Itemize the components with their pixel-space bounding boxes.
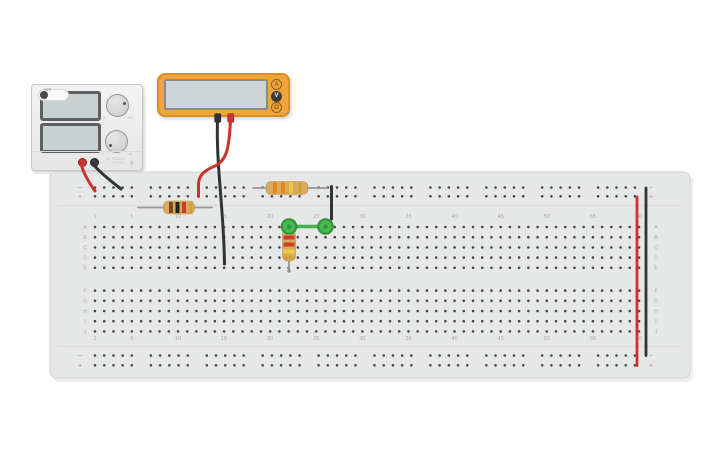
breadboard-hole[interactable] — [140, 256, 143, 259]
breadboard-hole[interactable] — [140, 226, 143, 229]
breadboard-hole[interactable] — [232, 320, 235, 323]
breadboard-hole[interactable] — [195, 236, 198, 239]
breadboard-hole[interactable] — [435, 256, 438, 259]
breadboard-hole[interactable] — [592, 226, 595, 229]
breadboard-hole[interactable] — [509, 256, 512, 259]
breadboard-hole[interactable] — [619, 330, 622, 333]
breadboard-hole[interactable] — [150, 186, 153, 189]
breadboard-hole[interactable] — [435, 226, 438, 229]
breadboard-hole[interactable] — [177, 186, 180, 189]
breadboard-hole[interactable] — [472, 289, 475, 292]
breadboard-hole[interactable] — [513, 354, 516, 357]
breadboard-hole[interactable] — [269, 330, 272, 333]
breadboard-hole[interactable] — [373, 195, 376, 198]
breadboard-hole[interactable] — [317, 364, 320, 367]
breadboard-hole[interactable] — [370, 289, 373, 292]
breadboard-hole[interactable] — [628, 330, 631, 333]
breadboard-hole[interactable] — [370, 246, 373, 249]
breadboard-hole[interactable] — [336, 186, 339, 189]
breadboard-hole[interactable] — [444, 320, 447, 323]
breadboard-hole[interactable] — [361, 320, 364, 323]
breadboard-hole[interactable] — [121, 364, 124, 367]
breadboard-hole[interactable] — [555, 310, 558, 313]
breadboard-hole[interactable] — [444, 256, 447, 259]
breadboard-hole[interactable] — [380, 289, 383, 292]
breadboard-hole[interactable] — [610, 236, 613, 239]
breadboard-hole[interactable] — [401, 364, 404, 367]
breadboard-hole[interactable] — [463, 310, 466, 313]
breadboard-hole[interactable] — [463, 320, 466, 323]
breadboard-hole[interactable] — [380, 300, 383, 303]
breadboard-hole[interactable] — [619, 256, 622, 259]
breadboard-hole[interactable] — [416, 300, 419, 303]
breadboard-hole[interactable] — [392, 364, 395, 367]
breadboard-hole[interactable] — [490, 267, 493, 270]
breadboard-hole[interactable] — [490, 310, 493, 313]
breadboard-hole[interactable] — [361, 236, 364, 239]
breadboard-hole[interactable] — [131, 246, 134, 249]
breadboard-hole[interactable] — [94, 267, 97, 270]
breadboard-hole[interactable] — [582, 320, 585, 323]
breadboard-hole[interactable] — [149, 330, 152, 333]
breadboard-hole[interactable] — [426, 310, 429, 313]
breadboard-hole[interactable] — [214, 226, 217, 229]
breadboard-hole[interactable] — [149, 236, 152, 239]
breadboard-hole[interactable] — [382, 364, 385, 367]
breadboard-hole[interactable] — [131, 289, 134, 292]
breadboard-hole[interactable] — [121, 289, 124, 292]
breadboard-hole[interactable] — [541, 364, 544, 367]
breadboard-hole[interactable] — [448, 195, 451, 198]
breadboard-hole[interactable] — [345, 195, 348, 198]
breadboard-hole[interactable] — [410, 364, 413, 367]
breadboard-hole[interactable] — [606, 195, 609, 198]
breadboard-hole[interactable] — [457, 186, 460, 189]
breadboard-hole[interactable] — [373, 186, 376, 189]
breadboard-hole[interactable] — [380, 236, 383, 239]
breadboard-hole[interactable] — [509, 330, 512, 333]
breadboard-hole[interactable] — [112, 300, 115, 303]
breadboard-hole[interactable] — [260, 310, 263, 313]
breadboard-hole[interactable] — [401, 186, 404, 189]
breadboard-hole[interactable] — [287, 289, 290, 292]
breadboard-hole[interactable] — [559, 195, 562, 198]
breadboard-hole[interactable] — [352, 236, 355, 239]
breadboard-hole[interactable] — [503, 354, 506, 357]
breadboard-hole[interactable] — [592, 330, 595, 333]
breadboard-hole[interactable] — [233, 186, 236, 189]
breadboard-hole[interactable] — [545, 320, 548, 323]
breadboard-hole[interactable] — [177, 195, 180, 198]
breadboard-hole[interactable] — [315, 310, 318, 313]
breadboard-hole[interactable] — [195, 320, 198, 323]
breadboard-hole[interactable] — [250, 256, 253, 259]
breadboard-hole[interactable] — [315, 267, 318, 270]
breadboard-hole[interactable] — [233, 364, 236, 367]
breadboard-hole[interactable] — [131, 236, 134, 239]
breadboard-hole[interactable] — [103, 186, 106, 189]
breadboard-hole[interactable] — [214, 289, 217, 292]
breadboard-hole[interactable] — [343, 289, 346, 292]
breadboard-hole[interactable] — [536, 226, 539, 229]
breadboard-hole[interactable] — [168, 354, 171, 357]
breadboard-hole[interactable] — [336, 195, 339, 198]
breadboard-hole[interactable] — [324, 289, 327, 292]
breadboard-hole[interactable] — [481, 267, 484, 270]
breadboard-hole[interactable] — [407, 330, 410, 333]
breadboard-hole[interactable] — [545, 289, 548, 292]
breadboard-hole[interactable] — [149, 300, 152, 303]
breadboard-hole[interactable] — [232, 289, 235, 292]
breadboard-hole[interactable] — [121, 330, 124, 333]
breadboard-hole[interactable] — [158, 267, 161, 270]
breadboard-hole[interactable] — [150, 195, 153, 198]
breadboard-hole[interactable] — [545, 310, 548, 313]
breadboard-hole[interactable] — [280, 195, 283, 198]
breadboard-hole[interactable] — [112, 267, 115, 270]
breadboard-hole[interactable] — [260, 236, 263, 239]
breadboard-hole[interactable] — [389, 267, 392, 270]
breadboard-hole[interactable] — [527, 320, 530, 323]
breadboard-hole[interactable] — [206, 195, 209, 198]
breadboard-hole[interactable] — [382, 195, 385, 198]
breadboard-hole[interactable] — [260, 226, 263, 229]
breadboard-hole[interactable] — [361, 300, 364, 303]
breadboard-hole[interactable] — [509, 300, 512, 303]
breadboard-hole[interactable] — [352, 289, 355, 292]
breadboard-hole[interactable] — [306, 300, 309, 303]
breadboard-hole[interactable] — [158, 256, 161, 259]
breadboard-hole[interactable] — [564, 320, 567, 323]
breadboard-hole[interactable] — [438, 364, 441, 367]
breadboard-hole[interactable] — [250, 236, 253, 239]
breadboard-hole[interactable] — [536, 236, 539, 239]
breadboard-hole[interactable] — [131, 354, 134, 357]
breadboard-hole[interactable] — [223, 267, 226, 270]
breadboard-hole[interactable] — [112, 195, 115, 198]
breadboard-hole[interactable] — [592, 300, 595, 303]
breadboard-hole[interactable] — [457, 195, 460, 198]
breadboard-hole[interactable] — [297, 320, 300, 323]
breadboard-hole[interactable] — [380, 330, 383, 333]
breadboard-hole[interactable] — [463, 256, 466, 259]
breadboard-hole[interactable] — [214, 310, 217, 313]
breadboard-hole[interactable] — [204, 256, 207, 259]
breadboard-hole[interactable] — [271, 195, 274, 198]
breadboard-hole[interactable] — [555, 267, 558, 270]
breadboard-hole[interactable] — [159, 364, 162, 367]
breadboard-hole[interactable] — [324, 300, 327, 303]
breadboard-hole[interactable] — [513, 186, 516, 189]
breadboard-hole[interactable] — [223, 300, 226, 303]
breadboard-hole[interactable] — [401, 195, 404, 198]
breadboard-hole[interactable] — [426, 236, 429, 239]
breadboard-hole[interactable] — [297, 236, 300, 239]
breadboard-hole[interactable] — [592, 289, 595, 292]
breadboard-hole[interactable] — [352, 226, 355, 229]
breadboard-hole[interactable] — [578, 186, 581, 189]
breadboard-hole[interactable] — [453, 300, 456, 303]
breadboard-hole[interactable] — [168, 186, 171, 189]
breadboard-hole[interactable] — [573, 300, 576, 303]
breadboard-hole[interactable] — [250, 320, 253, 323]
breadboard-hole[interactable] — [509, 246, 512, 249]
breadboard-hole[interactable] — [94, 354, 97, 357]
breadboard-hole[interactable] — [545, 300, 548, 303]
breadboard-hole[interactable] — [204, 236, 207, 239]
breadboard-hole[interactable] — [481, 236, 484, 239]
breadboard-hole[interactable] — [444, 310, 447, 313]
breadboard-hole[interactable] — [550, 186, 553, 189]
breadboard-hole[interactable] — [177, 256, 180, 259]
breadboard-hole[interactable] — [324, 320, 327, 323]
breadboard-hole[interactable] — [131, 300, 134, 303]
breadboard-hole[interactable] — [250, 330, 253, 333]
breadboard-hole[interactable] — [426, 289, 429, 292]
breadboard-hole[interactable] — [269, 289, 272, 292]
breadboard-hole[interactable] — [131, 320, 134, 323]
breadboard-hole[interactable] — [250, 289, 253, 292]
breadboard-hole[interactable] — [490, 236, 493, 239]
breadboard-hole[interactable] — [407, 289, 410, 292]
breadboard-hole[interactable] — [382, 186, 385, 189]
breadboard-hole[interactable] — [536, 300, 539, 303]
breadboard-hole[interactable] — [494, 195, 497, 198]
breadboard-hole[interactable] — [158, 300, 161, 303]
breadboard-hole[interactable] — [509, 236, 512, 239]
breadboard-hole[interactable] — [103, 354, 106, 357]
breadboard-hole[interactable] — [555, 300, 558, 303]
breadboard-hole[interactable] — [573, 226, 576, 229]
breadboard-hole[interactable] — [536, 267, 539, 270]
breadboard-hole[interactable] — [610, 246, 613, 249]
breadboard-hole[interactable] — [615, 195, 618, 198]
breadboard-hole[interactable] — [624, 364, 627, 367]
breadboard-hole[interactable] — [167, 246, 170, 249]
breadboard-hole[interactable] — [232, 236, 235, 239]
breadboard-hole[interactable] — [186, 186, 189, 189]
breadboard-hole[interactable] — [186, 310, 189, 313]
breadboard-hole[interactable] — [555, 320, 558, 323]
breadboard-hole[interactable] — [289, 354, 292, 357]
breadboard-hole[interactable] — [541, 354, 544, 357]
breadboard-hole[interactable] — [628, 267, 631, 270]
breadboard-hole[interactable] — [490, 246, 493, 249]
breadboard-hole[interactable] — [121, 226, 124, 229]
breadboard-hole[interactable] — [261, 195, 264, 198]
breadboard-hole[interactable] — [204, 246, 207, 249]
breadboard-hole[interactable] — [582, 300, 585, 303]
breadboard-hole[interactable] — [582, 236, 585, 239]
breadboard-hole[interactable] — [559, 364, 562, 367]
breadboard-hole[interactable] — [167, 267, 170, 270]
breadboard-hole[interactable] — [345, 364, 348, 367]
breadboard-hole[interactable] — [407, 310, 410, 313]
breadboard-hole[interactable] — [444, 300, 447, 303]
breadboard-hole[interactable] — [195, 330, 198, 333]
breadboard-hole[interactable] — [232, 226, 235, 229]
breadboard-hole[interactable] — [112, 186, 115, 189]
breadboard-hole[interactable] — [121, 256, 124, 259]
breadboard-hole[interactable] — [94, 236, 97, 239]
breadboard-hole[interactable] — [149, 256, 152, 259]
breadboard-hole[interactable] — [472, 267, 475, 270]
breadboard-hole[interactable] — [352, 330, 355, 333]
breadboard-hole[interactable] — [536, 289, 539, 292]
breadboard-hole[interactable] — [610, 310, 613, 313]
breadboard-hole[interactable] — [628, 256, 631, 259]
breadboard-hole[interactable] — [509, 226, 512, 229]
breadboard-hole[interactable] — [158, 289, 161, 292]
breadboard-hole[interactable] — [103, 267, 106, 270]
breadboard-hole[interactable] — [158, 236, 161, 239]
breadboard-hole[interactable] — [416, 236, 419, 239]
breadboard-hole[interactable] — [298, 195, 301, 198]
breadboard-hole[interactable] — [398, 330, 401, 333]
breadboard-hole[interactable] — [131, 256, 134, 259]
breadboard-hole[interactable] — [112, 354, 115, 357]
breadboard-hole[interactable] — [592, 320, 595, 323]
breadboard-hole[interactable] — [352, 300, 355, 303]
breadboard-hole[interactable] — [398, 310, 401, 313]
breadboard-hole[interactable] — [610, 289, 613, 292]
breadboard-hole[interactable] — [453, 310, 456, 313]
breadboard-hole[interactable] — [494, 364, 497, 367]
breadboard-hole[interactable] — [569, 186, 572, 189]
breadboard-hole[interactable] — [103, 195, 106, 198]
breadboard-hole[interactable] — [150, 354, 153, 357]
breadboard-hole[interactable] — [333, 310, 336, 313]
breadboard-hole[interactable] — [444, 236, 447, 239]
breadboard-hole[interactable] — [389, 300, 392, 303]
breadboard-hole[interactable] — [564, 310, 567, 313]
breadboard-hole[interactable] — [582, 226, 585, 229]
breadboard-hole[interactable] — [150, 364, 153, 367]
breadboard-hole[interactable] — [382, 354, 385, 357]
breadboard-hole[interactable] — [121, 246, 124, 249]
breadboard-hole[interactable] — [481, 226, 484, 229]
breadboard-hole[interactable] — [206, 364, 209, 367]
breadboard-hole[interactable] — [407, 226, 410, 229]
breadboard-hole[interactable] — [592, 246, 595, 249]
breadboard-hole[interactable] — [186, 289, 189, 292]
breadboard-hole[interactable] — [536, 246, 539, 249]
breadboard-hole[interactable] — [186, 320, 189, 323]
breadboard-hole[interactable] — [261, 354, 264, 357]
breadboard-hole[interactable] — [324, 330, 327, 333]
breadboard-hole[interactable] — [177, 246, 180, 249]
breadboard-hole[interactable] — [112, 320, 115, 323]
breadboard-hole[interactable] — [518, 256, 521, 259]
breadboard-hole[interactable] — [398, 267, 401, 270]
breadboard-hole[interactable] — [269, 300, 272, 303]
breadboard-hole[interactable] — [177, 310, 180, 313]
breadboard-hole[interactable] — [131, 310, 134, 313]
breadboard-hole[interactable] — [398, 300, 401, 303]
breadboard-hole[interactable] — [597, 186, 600, 189]
breadboard-hole[interactable] — [410, 195, 413, 198]
breadboard-hole[interactable] — [343, 320, 346, 323]
breadboard-hole[interactable] — [370, 310, 373, 313]
breadboard-hole[interactable] — [429, 364, 432, 367]
breadboard-hole[interactable] — [481, 256, 484, 259]
breadboard-hole[interactable] — [453, 330, 456, 333]
breadboard-hole[interactable] — [354, 186, 357, 189]
breadboard-hole[interactable] — [297, 289, 300, 292]
breadboard-hole[interactable] — [472, 310, 475, 313]
breadboard-hole[interactable] — [333, 236, 336, 239]
breadboard-hole[interactable] — [361, 267, 364, 270]
breadboard-hole[interactable] — [121, 320, 124, 323]
breadboard-hole[interactable] — [280, 364, 283, 367]
breadboard-hole[interactable] — [343, 330, 346, 333]
breadboard-hole[interactable] — [167, 289, 170, 292]
breadboard-hole[interactable] — [435, 289, 438, 292]
breadboard-hole[interactable] — [297, 330, 300, 333]
breadboard-hole[interactable] — [559, 354, 562, 357]
breadboard-hole[interactable] — [260, 256, 263, 259]
breadboard-hole[interactable] — [214, 236, 217, 239]
breadboard-hole[interactable] — [503, 364, 506, 367]
breadboard-hole[interactable] — [214, 330, 217, 333]
breadboard-hole[interactable] — [343, 236, 346, 239]
breadboard-hole[interactable] — [555, 236, 558, 239]
breadboard-hole[interactable] — [370, 330, 373, 333]
breadboard-hole[interactable] — [389, 236, 392, 239]
breadboard-hole[interactable] — [466, 186, 469, 189]
breadboard-hole[interactable] — [343, 300, 346, 303]
breadboard-hole[interactable] — [370, 267, 373, 270]
breadboard-hole[interactable] — [260, 330, 263, 333]
breadboard-hole[interactable] — [131, 267, 134, 270]
breadboard-hole[interactable] — [94, 289, 97, 292]
breadboard-hole[interactable] — [103, 320, 106, 323]
breadboard-hole[interactable] — [398, 246, 401, 249]
breadboard-hole[interactable] — [564, 256, 567, 259]
breadboard-hole[interactable] — [499, 300, 502, 303]
breadboard-hole[interactable] — [195, 256, 198, 259]
breadboard-hole[interactable] — [398, 226, 401, 229]
breadboard-hole[interactable] — [167, 226, 170, 229]
breadboard-hole[interactable] — [195, 226, 198, 229]
breadboard-hole[interactable] — [601, 289, 604, 292]
breadboard-hole[interactable] — [131, 195, 134, 198]
breadboard-hole[interactable] — [215, 364, 218, 367]
breadboard-hole[interactable] — [159, 195, 162, 198]
breadboard-hole[interactable] — [306, 330, 309, 333]
breadboard-hole[interactable] — [578, 364, 581, 367]
breadboard-hole[interactable] — [410, 186, 413, 189]
breadboard-hole[interactable] — [444, 226, 447, 229]
breadboard-hole[interactable] — [352, 310, 355, 313]
breadboard-hole[interactable] — [324, 246, 327, 249]
breadboard-hole[interactable] — [333, 330, 336, 333]
breadboard-hole[interactable] — [628, 320, 631, 323]
breadboard-hole[interactable] — [324, 256, 327, 259]
breadboard-hole[interactable] — [527, 226, 530, 229]
breadboard-hole[interactable] — [327, 354, 330, 357]
breadboard-hole[interactable] — [260, 300, 263, 303]
breadboard-hole[interactable] — [167, 310, 170, 313]
breadboard-hole[interactable] — [573, 256, 576, 259]
breadboard-hole[interactable] — [103, 256, 106, 259]
breadboard-hole[interactable] — [582, 256, 585, 259]
breadboard-hole[interactable] — [324, 267, 327, 270]
breadboard-hole[interactable] — [392, 354, 395, 357]
breadboard-hole[interactable] — [250, 246, 253, 249]
breadboard-hole[interactable] — [398, 236, 401, 239]
breadboard-hole[interactable] — [518, 226, 521, 229]
